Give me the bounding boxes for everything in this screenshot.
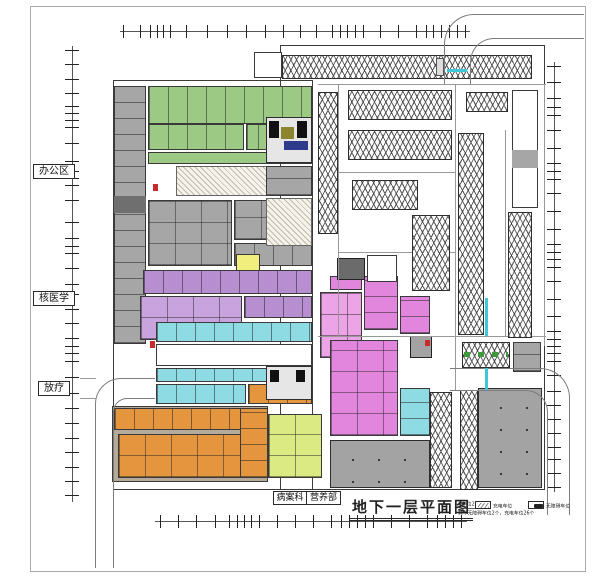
- grid-tick: [65, 120, 79, 121]
- zone-kitchen-orange-east: [240, 408, 268, 478]
- grid-tick: [65, 143, 79, 144]
- grid-tick: [65, 113, 79, 114]
- parking-stalls-column: [412, 215, 450, 291]
- parking-count-detail: 其中无障碍车位2个，充电车位26个: [458, 509, 534, 516]
- lane-line: [544, 84, 545, 346]
- grid-tick: [347, 25, 348, 38]
- grid-tick: [246, 25, 247, 38]
- gate-booth: [436, 58, 444, 76]
- escalator-block: [281, 127, 294, 139]
- grid-tick: [547, 211, 561, 212]
- grid-tick: [313, 515, 314, 528]
- legend-charging-icon: [475, 501, 491, 509]
- northwest-service-rooms: [254, 52, 282, 78]
- zone-nutrition-lime: [268, 414, 322, 478]
- road-west-stub: [80, 378, 96, 379]
- grid-tick: [65, 127, 79, 128]
- grid-tick: [547, 179, 561, 180]
- grid-tick: [65, 467, 79, 468]
- zone-nuclear-purple-east: [244, 296, 312, 318]
- zone-nuclear-purple-band: [143, 270, 312, 294]
- stair-core-west: [114, 196, 146, 213]
- charging-stall-markers: [464, 352, 508, 357]
- grid-tick: [251, 515, 252, 528]
- parking-stalls-column: [318, 92, 338, 234]
- grid-tick: [65, 268, 79, 269]
- grid-tick: [65, 246, 79, 247]
- grid-tick: [547, 316, 561, 317]
- grid-tick: [65, 346, 79, 347]
- lane-line: [338, 172, 456, 173]
- drawing-title: 地下一层平面图: [350, 496, 473, 521]
- grid-tick: [65, 185, 79, 186]
- east-service-room-gray: [512, 150, 538, 168]
- grid-tick: [332, 25, 333, 38]
- grid-tick: [547, 98, 561, 99]
- elevator-shaft: [269, 121, 279, 138]
- hall-gray-south: [330, 440, 430, 488]
- grid-tick: [547, 193, 561, 194]
- grid-tick: [157, 25, 158, 38]
- grid-tick: [265, 25, 266, 38]
- grid-tick: [547, 299, 561, 300]
- accessible-icon-car: [534, 504, 543, 509]
- grid-tick: [547, 331, 561, 332]
- parking-stalls-column: [508, 212, 532, 338]
- grid-tick: [65, 481, 79, 482]
- grid-tick: [65, 353, 79, 354]
- grid-tick: [380, 25, 381, 38]
- elevator-shaft: [270, 370, 279, 382]
- zone-cyan-band-3: [156, 384, 246, 404]
- zone-cyan-southeast: [400, 388, 430, 436]
- zone-magenta-east-rooms: [364, 276, 398, 330]
- zone-white-rooms: [156, 344, 312, 366]
- label-office-area: 办公区: [33, 164, 75, 179]
- zone-magenta-strip: [400, 296, 430, 334]
- zone-center-gray-room: [266, 166, 312, 196]
- grid-tick: [65, 338, 79, 339]
- fire-equipment-mark: [150, 341, 155, 348]
- grid-tick: [196, 515, 197, 528]
- grid-line-top: [120, 31, 470, 32]
- ramp-hatch-center: [266, 198, 312, 246]
- grid-tick: [283, 25, 284, 38]
- zone-office-green-b: [148, 124, 244, 150]
- grid-tick: [547, 281, 561, 282]
- grid-tick: [426, 25, 427, 38]
- floor-plan-drawing: 办公区 核医学 放疗 病案科 营养部: [0, 0, 600, 584]
- grid-tick: [65, 238, 79, 239]
- grid-tick: [340, 25, 341, 38]
- label-radiotherapy: 放疗: [38, 381, 70, 396]
- grid-tick: [65, 452, 79, 453]
- grid-tick: [363, 25, 364, 38]
- escalator-block: [284, 141, 308, 150]
- grid-line-bottom: [155, 521, 467, 522]
- grid-tick: [547, 339, 561, 340]
- parking-stalls-column: [458, 133, 484, 335]
- grid-tick: [65, 161, 79, 162]
- parking-stalls-row: [352, 180, 418, 210]
- grid-tick: [207, 25, 208, 38]
- zone-magenta-south: [330, 340, 398, 436]
- grid-tick: [547, 107, 561, 108]
- east-service-rooms: [512, 90, 538, 208]
- grid-tick: [65, 423, 79, 424]
- grid-tick: [65, 309, 79, 310]
- lane-line: [338, 84, 339, 336]
- grid-tick: [227, 25, 228, 38]
- grid-tick: [547, 115, 561, 116]
- grid-tick: [547, 171, 561, 172]
- grid-tick: [215, 515, 216, 528]
- label-nuclear-medicine: 核医学: [33, 291, 75, 306]
- grid-tick: [65, 323, 79, 324]
- grid-tick: [295, 515, 296, 528]
- grid-tick: [229, 515, 230, 528]
- grid-tick: [547, 267, 561, 268]
- road-west-stub: [80, 398, 96, 399]
- grid-tick: [186, 25, 187, 38]
- grid-tick: [123, 25, 124, 38]
- grid-tick: [331, 515, 332, 528]
- zone-storage-gray-a: [148, 200, 232, 266]
- grid-tick: [65, 222, 79, 223]
- fire-equipment-mark: [425, 340, 430, 346]
- grid-tick: [244, 515, 245, 528]
- grid-tick: [547, 353, 561, 354]
- charging-icon-hatch: [478, 503, 489, 508]
- grid-tick: [547, 244, 561, 245]
- grid-tick: [433, 25, 434, 38]
- grid-tick: [316, 25, 317, 38]
- lane-line: [318, 84, 546, 85]
- grid-tick: [398, 25, 399, 38]
- grid-tick: [163, 25, 164, 38]
- service-rooms-center: [367, 255, 397, 282]
- elevator-shaft: [297, 121, 307, 138]
- grid-tick: [300, 25, 301, 38]
- parking-stalls-row: [348, 130, 452, 160]
- gate-bar-southeast: [485, 368, 488, 390]
- grid-tick: [65, 253, 79, 254]
- grid-tick: [65, 377, 79, 378]
- legend-accessible-icon: [528, 501, 544, 509]
- grid-tick: [150, 25, 151, 38]
- grid-tick: [547, 346, 561, 347]
- grid-tick: [547, 229, 561, 230]
- grid-tick: [178, 515, 179, 528]
- grid-tick: [170, 25, 171, 38]
- grid-tick: [547, 259, 561, 260]
- lane-line: [505, 130, 506, 336]
- grid-tick: [65, 50, 79, 51]
- label-medical-records: 病案科: [273, 491, 307, 505]
- entry-gate-bar: [447, 69, 467, 72]
- elevator-shaft: [296, 370, 305, 382]
- grid-tick: [65, 64, 79, 65]
- lane-line: [455, 84, 456, 390]
- grid-tick: [277, 515, 278, 528]
- parking-stalls-column: [430, 392, 452, 488]
- label-nutrition-dept: 营养部: [306, 491, 341, 505]
- grid-tick: [65, 284, 79, 285]
- legend-charging-label: 充电车位: [493, 502, 512, 509]
- grid-tick: [160, 515, 161, 528]
- road-entry-north-inner: [470, 38, 584, 84]
- fire-equipment-mark: [153, 184, 158, 191]
- grid-tick: [341, 515, 342, 528]
- grid-tick: [259, 515, 260, 528]
- grid-line-left: [72, 46, 73, 502]
- grid-tick: [237, 515, 238, 528]
- grid-tick: [65, 200, 79, 201]
- grid-tick: [65, 495, 79, 496]
- gate-bar-east: [485, 298, 488, 336]
- grid-tick: [547, 163, 561, 164]
- grid-tick: [65, 79, 79, 80]
- parking-stalls-row: [466, 92, 508, 112]
- grid-tick: [547, 130, 561, 131]
- stair-core-center: [337, 258, 365, 280]
- grid-tick: [547, 361, 561, 362]
- zone-cyan-band-1: [156, 322, 312, 342]
- grid-tick: [65, 361, 79, 362]
- grid-tick: [65, 93, 79, 94]
- grid-tick: [355, 25, 356, 38]
- legend-accessible-label: 无障碍车位: [546, 502, 570, 509]
- road-west-inner: [113, 398, 155, 568]
- grid-tick: [416, 25, 417, 38]
- grid-tick: [441, 25, 442, 38]
- grid-tick: [65, 106, 79, 107]
- parking-stalls-row: [348, 90, 452, 120]
- grid-tick: [65, 438, 79, 439]
- grid-tick: [547, 252, 561, 253]
- grid-tick: [65, 408, 79, 409]
- grid-tick: [140, 25, 141, 38]
- grid-tick: [547, 148, 561, 149]
